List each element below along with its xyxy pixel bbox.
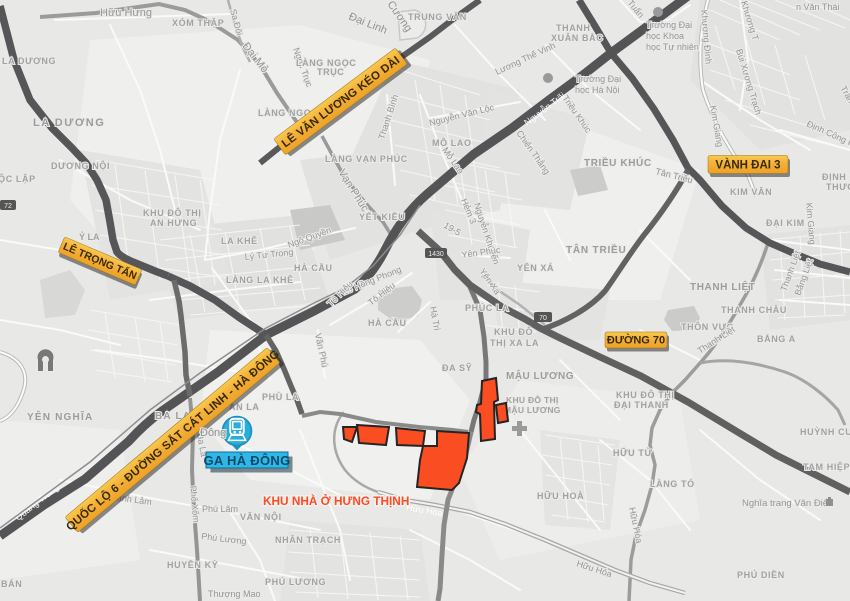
svg-text:Thượng Mao: Thượng Mao xyxy=(208,589,260,599)
svg-text:HỮU TỬ: HỮU TỬ xyxy=(613,447,653,458)
svg-text:Phú Lãm: Phú Lãm xyxy=(202,504,238,514)
svg-text:Hữu Hưng: Hữu Hưng xyxy=(100,7,152,19)
svg-text:TRIỀU KHÚC: TRIỀU KHÚC xyxy=(584,156,652,169)
svg-text:KHU ĐÔ THỊ: KHU ĐÔ THỊ xyxy=(616,389,675,400)
svg-text:GA HÀ ĐÔNG: GA HÀ ĐÔNG xyxy=(203,453,290,468)
svg-text:LÀNG TÓ: LÀNG TÓ xyxy=(650,478,695,489)
svg-text:THANH: THANH xyxy=(556,23,591,33)
svg-text:VĂN NỘI: VĂN NỘI xyxy=(240,511,282,522)
svg-text:1430: 1430 xyxy=(428,251,444,258)
svg-text:70: 70 xyxy=(539,315,547,322)
svg-text:LÀNG LA KHÊ: LÀNG LA KHÊ xyxy=(226,274,294,285)
svg-text:n Văn Thái: n Văn Thái xyxy=(796,2,839,12)
svg-text:THƯỢNG: THƯỢNG xyxy=(826,182,850,192)
svg-text:LÀNG VẠN PHÚC: LÀNG VẠN PHÚC xyxy=(325,153,408,164)
svg-text:học Tự nhiên: học Tự nhiên xyxy=(646,42,699,52)
svg-text:ĐỊNH CÔ: ĐỊNH CÔ xyxy=(822,171,850,182)
svg-text:KHU ĐÔ THỊ: KHU ĐÔ THỊ xyxy=(506,394,559,405)
svg-text:HỮU HOÀ: HỮU HOÀ xyxy=(537,491,584,501)
svg-text:KHU NHÀ Ở HƯNG THỊNH: KHU NHÀ Ở HƯNG THỊNH xyxy=(263,494,409,508)
svg-text:Trường Đại: Trường Đại xyxy=(646,20,692,30)
svg-text:72: 72 xyxy=(4,203,12,210)
svg-text:HUỲNH CUNG: HUỲNH CUNG xyxy=(800,426,850,437)
svg-text:KHU ĐÔ THỊ: KHU ĐÔ THỊ xyxy=(143,207,202,218)
svg-text:XUÂN BẮC: XUÂN BẮC xyxy=(551,32,603,43)
svg-text:PHÚC LA: PHÚC LA xyxy=(465,302,509,313)
svg-text:YÊN NGHĨA: YÊN NGHĨA xyxy=(27,410,93,423)
svg-text:ĐẠI THANH: ĐẠI THANH xyxy=(614,400,669,410)
svg-text:YẾT KIỀU: YẾT KIỀU xyxy=(359,212,405,222)
svg-text:ĐA SỸ: ĐA SỸ xyxy=(442,363,472,373)
svg-text:DƯƠNG NỘI: DƯƠNG NỘI xyxy=(51,160,110,171)
svg-text:AN HƯNG: AN HƯNG xyxy=(150,218,197,228)
svg-text:MẬU LƯƠNG: MẬU LƯƠNG xyxy=(506,369,574,382)
svg-text:MẬU LƯƠNG: MẬU LƯƠNG xyxy=(504,404,561,415)
svg-text:THANH CHÂU: THANH CHÂU xyxy=(721,304,787,315)
svg-text:LA KHÊ: LA KHÊ xyxy=(221,235,258,246)
svg-text:VÀNH ĐAI 3: VÀNH ĐAI 3 xyxy=(715,159,780,172)
svg-text:NHÂN TRẠCH: NHÂN TRẠCH xyxy=(275,534,341,545)
svg-text:TRUNG VĂN: TRUNG VĂN xyxy=(408,12,467,22)
svg-text:ĐỘC LẬP: ĐỘC LẬP xyxy=(0,173,36,184)
svg-text:PHÚ DIỀN: PHÚ DIỀN xyxy=(737,569,785,580)
svg-text:học Hà Nội: học Hà Nội xyxy=(575,85,620,95)
svg-text:Trường Đại: Trường Đại xyxy=(575,74,621,84)
svg-text:Đông: Đông xyxy=(200,427,226,439)
svg-text:Ỷ LA: Ỷ LA xyxy=(79,231,100,242)
svg-text:ĐẠI KIM: ĐẠI KIM xyxy=(766,218,805,228)
svg-text:HÀ CẦU: HÀ CẦU xyxy=(368,318,407,328)
svg-text:MỖ LAO: MỖ LAO xyxy=(432,137,472,148)
svg-text:THỊ XA LA: THỊ XA LA xyxy=(490,338,539,348)
svg-text:BÁN: BÁN xyxy=(1,579,22,589)
svg-text:XÓM THẬP: XÓM THẬP xyxy=(172,17,224,28)
svg-text:KIM VĂN: KIM VĂN xyxy=(730,187,772,197)
svg-text:HÀ CẦU: HÀ CẦU xyxy=(294,263,333,273)
svg-text:Nghĩa trang Văn Điển: Nghĩa trang Văn Điển xyxy=(742,498,833,509)
svg-text:TAM HIỆP: TAM HIỆP xyxy=(803,461,850,472)
svg-text:KHU ĐÔ: KHU ĐÔ xyxy=(494,326,533,337)
svg-text:THANH LIỆT: THANH LIỆT xyxy=(690,280,755,293)
svg-text:ĐƯỜNG 70: ĐƯỜNG 70 xyxy=(607,334,665,347)
svg-text:YÊN XÁ: YÊN XÁ xyxy=(517,262,554,273)
svg-text:PHÚ LƯƠNG: PHÚ LƯƠNG xyxy=(265,576,326,587)
svg-text:LA DƯƠNG: LA DƯƠNG xyxy=(2,56,56,66)
svg-text:TÂN TRIỀU: TÂN TRIỀU xyxy=(566,243,627,256)
svg-text:học Khoa: học Khoa xyxy=(646,31,684,41)
svg-text:PHÙ LA: PHÙ LA xyxy=(262,391,299,402)
svg-text:HUYỀN KỲ: HUYỀN KỲ xyxy=(167,559,218,570)
svg-text:BẰNG A: BẰNG A xyxy=(757,334,796,344)
svg-text:LA DƯƠNG: LA DƯƠNG xyxy=(33,117,105,129)
svg-text:TRỤC: TRỤC xyxy=(317,67,344,77)
